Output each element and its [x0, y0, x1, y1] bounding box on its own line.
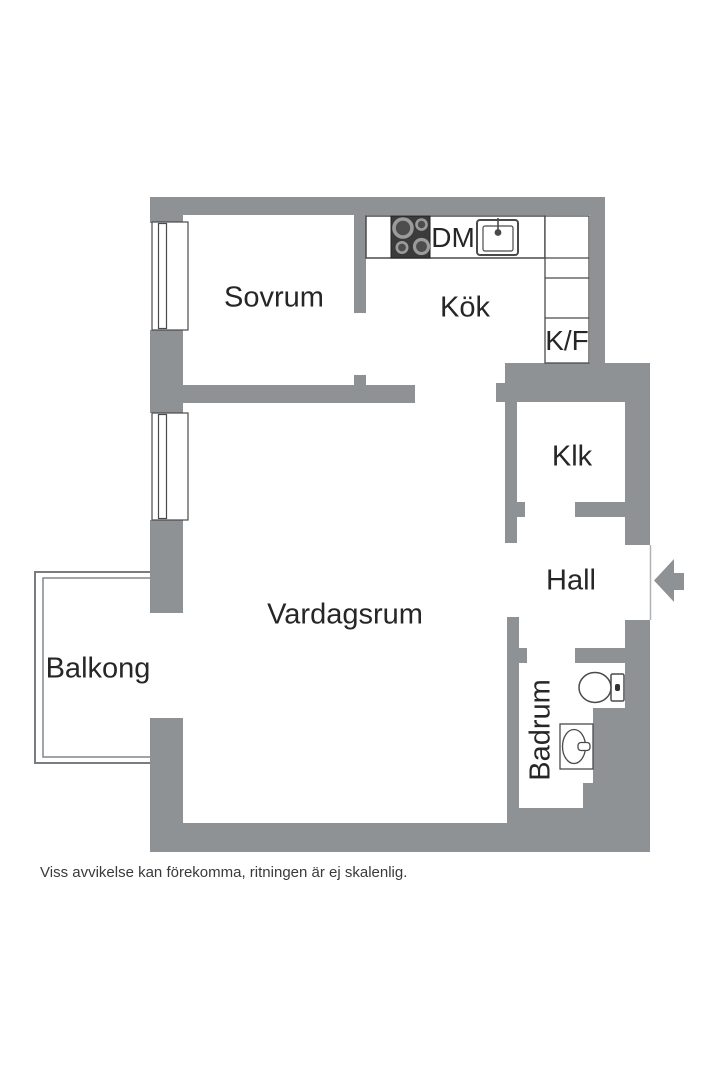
appliance-label-dishwasher: DM: [431, 224, 475, 252]
room-label-kok: Kök: [440, 294, 490, 323]
room-label-hall: Hall: [546, 567, 596, 596]
wall-badrum-top: [575, 648, 625, 663]
wall-left-c: [150, 520, 183, 613]
disclaimer-text: Viss avvikelse kan förekomma, ritningen …: [40, 864, 407, 881]
wall-sovrum-door-stub: [354, 375, 366, 385]
wall-klk-notch: [496, 383, 505, 402]
wall-kitchen-right: [590, 215, 605, 363]
toilet-icon: [579, 673, 624, 703]
wall-left-d: [150, 718, 183, 828]
wall-sovrum-kok: [354, 215, 366, 313]
wall-klk-stub: [517, 502, 525, 517]
room-label-vardagsrum: Vardagsrum: [267, 601, 423, 630]
room-label-badrum: Badrum: [527, 679, 556, 781]
balcony-doorway: [151, 613, 188, 718]
room-label-sovrum: Sovrum: [224, 284, 324, 313]
entrance-arrow-icon: [654, 559, 684, 602]
wall-badrum-door-stub: [519, 648, 527, 663]
wall-left-b: [150, 330, 183, 413]
window-icon-sovrum: [152, 222, 188, 330]
wall-top: [150, 197, 605, 215]
wall-right-upper: [625, 402, 650, 545]
wall-toilet-niche: [593, 708, 650, 783]
floorplan-drawing: [0, 0, 720, 1080]
wall-sovrum-vardagsrum: [183, 385, 415, 403]
wall-bottom: [150, 823, 650, 852]
stove-burners-icon: [391, 216, 430, 258]
wall-klk-left: [505, 402, 517, 543]
room-label-klk: Klk: [552, 443, 592, 472]
appliance-label-fridge-freezer: K/F: [545, 327, 589, 355]
wall-hall-left: [507, 617, 519, 823]
kitchen-sink-icon: [477, 218, 518, 255]
washbasin-icon: [560, 724, 593, 769]
wall-klk-top: [505, 363, 650, 402]
wall-badrum-bottom: [507, 808, 650, 823]
floorplan-canvas: Sovrum Kök Vardagsrum Hall Klk Badrum Ba…: [0, 0, 720, 1080]
wall-basin-step: [583, 783, 650, 808]
room-label-balkong: Balkong: [46, 655, 151, 684]
wall-klk-bottom: [575, 502, 625, 517]
window-icon-vardagsrum: [152, 413, 188, 520]
